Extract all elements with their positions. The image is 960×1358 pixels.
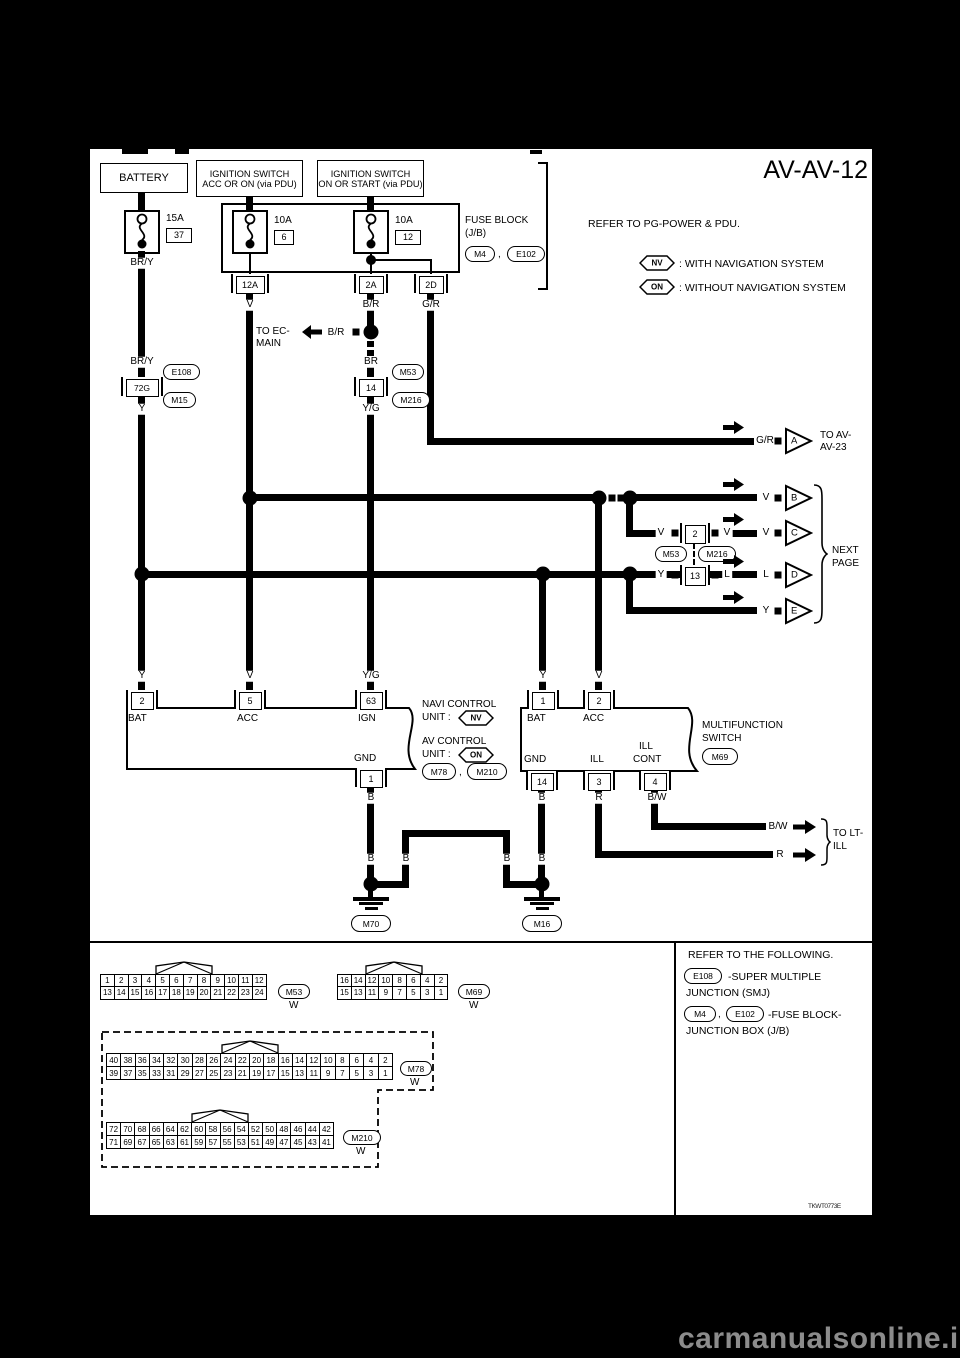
pin-cell: 49	[263, 1136, 277, 1149]
connector-color: W	[289, 1000, 298, 1012]
fuse1-number: 37	[166, 228, 192, 243]
on-tag-icon: ON	[639, 279, 675, 295]
pin-cell: 26	[207, 1054, 221, 1067]
pin-cell: 17	[156, 987, 170, 999]
pin-cell: 5	[156, 975, 170, 987]
wire-bw-run	[651, 823, 766, 830]
nv-tag: NV	[639, 259, 675, 268]
to-lt-ill-line2: ILL	[833, 841, 847, 853]
pin-cell: 31	[164, 1067, 178, 1080]
nv-tag-icon: NV	[458, 710, 494, 726]
legend-text-smj: -SUPER MULTIPLE	[728, 971, 821, 983]
pin-label-illcont1: ILL	[639, 741, 653, 753]
legend-text-smj2: JUNCTION (SMJ)	[686, 987, 770, 999]
section-bracket	[538, 162, 546, 164]
pin-label-acc: ACC	[237, 713, 258, 725]
fuse-block-label1: FUSE BLOCK	[465, 215, 528, 227]
pin-cell: 35	[136, 1067, 150, 1080]
pin-cell: 41	[320, 1136, 334, 1149]
multi-name2: SWITCH	[702, 733, 741, 745]
pin-cell: 23	[239, 987, 253, 999]
wire-stub	[712, 572, 719, 579]
section-bracket	[538, 288, 546, 290]
to-ec-main-line2: MAIN	[256, 338, 281, 350]
navi-unit-name2: AV CONTROL	[422, 736, 486, 748]
pin-cell: 60	[192, 1123, 206, 1136]
pin-cell: 9	[379, 987, 393, 999]
to-ec-main-line1: TO EC-	[256, 326, 290, 338]
link-letter: E	[791, 606, 797, 617]
connector-72g: 72G	[121, 377, 163, 396]
pin-cell: 21	[236, 1067, 250, 1080]
pin-label-gnd: GND	[524, 754, 546, 766]
pin-cell: 11	[307, 1067, 321, 1080]
pin-cell: 3	[129, 975, 143, 987]
pin-cell: 68	[135, 1123, 149, 1136]
pin-cell: 45	[291, 1136, 305, 1149]
fuse2-amp: 10A	[274, 215, 292, 227]
nv-legend-text: : WITH NAVIGATION SYSTEM	[679, 258, 824, 270]
wire-color: B	[502, 854, 513, 865]
terminal-2a: 2A	[354, 274, 388, 293]
legend-ref-m4: M4	[684, 1006, 716, 1022]
ground-icon	[524, 897, 560, 901]
left-arrow-icon	[301, 325, 322, 339]
on-tag: ON	[458, 751, 494, 760]
nv-tag-icon: NV	[639, 255, 675, 271]
pin-cell: 18	[264, 1054, 278, 1067]
pin-cell: 25	[207, 1067, 221, 1080]
pin-cell: 18	[170, 987, 184, 999]
pin-cell: 12	[253, 975, 267, 987]
multi-terminal-acc: 2	[583, 690, 615, 709]
ground-icon	[353, 897, 389, 901]
pin-cell: 55	[221, 1136, 235, 1149]
comma: ,	[459, 767, 462, 779]
ign1-line2: ACC OR ON (via PDU)	[202, 179, 296, 189]
ign1-line1: IGNITION SWITCH	[210, 169, 290, 179]
pin-label-ign: IGN	[358, 713, 376, 725]
junction-dot	[364, 325, 379, 340]
pin-grid-m210: 7270686664626058565452504846444271696765…	[106, 1122, 334, 1149]
diagram-code: TKWT0773E	[808, 1203, 841, 1210]
pin-cell: 63	[164, 1136, 178, 1149]
fuse3-number: 12	[395, 230, 421, 245]
pin-cell: 11	[239, 975, 253, 987]
terminal-number: 3	[588, 773, 611, 791]
pin-cell: 4	[142, 975, 156, 987]
pin-cell: 56	[221, 1123, 235, 1136]
pin-cell: 14	[115, 987, 129, 999]
connector-2: 2	[680, 523, 710, 543]
connector-14: 14	[354, 377, 388, 396]
on-tag-icon: ON	[458, 747, 494, 763]
wire-gr-run	[427, 438, 754, 445]
connector-ref-m53: M53	[655, 546, 687, 562]
pin-cell: 12	[307, 1054, 321, 1067]
pin-grid-m69: 16141210864215131197531	[337, 974, 448, 1000]
junction-dot	[243, 491, 258, 506]
right-arrow-icon	[723, 591, 745, 604]
right-arrow-icon	[723, 555, 745, 568]
connector-id-m69: M69	[458, 984, 490, 999]
next-page-brace	[812, 483, 828, 625]
legend-text-jb: -FUSE BLOCK-	[768, 1009, 842, 1021]
wire-color: V	[722, 528, 733, 539]
section-bracket	[546, 162, 548, 290]
fuse-10a-12-icon	[353, 210, 389, 254]
pin-cell: 61	[178, 1136, 192, 1149]
fuse-15a-icon	[124, 210, 160, 254]
connector-color: W	[410, 1077, 419, 1089]
pin-cell: 6	[350, 1054, 364, 1067]
pin-cell: 15	[338, 987, 352, 999]
pin-cell: 15	[279, 1067, 293, 1080]
pin-cell: 24	[253, 987, 267, 999]
pin-cell: 70	[121, 1123, 135, 1136]
pin-label-gnd: GND	[354, 753, 376, 765]
bus-upper	[246, 494, 598, 501]
wire-color: Y	[656, 570, 667, 581]
connector-ref-m216: M216	[392, 392, 430, 408]
divider	[90, 941, 872, 943]
fuse1-amp: 15A	[166, 213, 184, 225]
link-letter: B	[791, 493, 797, 504]
page-link-d: D	[785, 561, 813, 589]
pin-cell: 1	[101, 975, 115, 987]
wire-color: V	[761, 528, 772, 539]
lt-ill-brace	[819, 817, 831, 867]
fuse2-number: 6	[274, 230, 294, 245]
wire	[249, 252, 251, 276]
to-av23-line1: TO AV-	[820, 430, 851, 442]
wire-b-multi	[538, 790, 545, 888]
navi-unit-name1b: UNIT :	[422, 712, 451, 724]
connector-ref-m69: M69	[702, 748, 738, 765]
comma: ,	[718, 1009, 721, 1021]
pin-cell: 8	[198, 975, 212, 987]
navi-unit-name1: NAVI CONTROL	[422, 699, 496, 711]
wire	[539, 884, 544, 897]
pin-cell: 7	[393, 987, 407, 999]
pin-cell: 15	[129, 987, 143, 999]
pin-cell: 3	[421, 987, 435, 999]
ground-icon	[365, 907, 378, 910]
pin-cell: 43	[306, 1136, 320, 1149]
wire-color: Y	[137, 404, 148, 415]
navi-terminal-gnd: 1	[355, 768, 387, 787]
pin-cell: 36	[136, 1054, 150, 1067]
wire-v-right	[595, 494, 602, 691]
wire-color: V	[245, 671, 256, 682]
wire-stub	[672, 530, 679, 537]
wire-color: V	[594, 671, 605, 682]
pin-cell: 23	[221, 1067, 235, 1080]
pin-cell: 13	[101, 987, 115, 999]
page-edge-mark	[122, 149, 148, 154]
link-letter: A	[791, 436, 797, 447]
pin-cell: 42	[320, 1123, 334, 1136]
pin-cell: 11	[366, 987, 380, 999]
pin-cell: 40	[107, 1054, 121, 1067]
pin-cell: 38	[121, 1054, 135, 1067]
pin-cell: 46	[291, 1123, 305, 1136]
pin-cell: 34	[150, 1054, 164, 1067]
watermark: carmanualsonline.info	[678, 1322, 960, 1356]
pin-cell: 2	[115, 975, 129, 987]
junction-dot	[623, 491, 638, 506]
to-lt-ill-line1: TO LT-	[833, 828, 863, 840]
pin-label-ill: ILL	[590, 754, 604, 766]
wire	[368, 884, 373, 897]
wire-color: Y/G	[360, 404, 381, 415]
connector-id-m210: M210	[343, 1130, 381, 1145]
wire-color: Y/G	[360, 671, 381, 682]
pin-cell: 51	[249, 1136, 263, 1149]
terminal-number: 1	[360, 770, 383, 788]
right-arrow-icon	[723, 421, 745, 434]
pin-cell: 50	[263, 1123, 277, 1136]
multi-terminal-illcont: 4	[639, 771, 671, 790]
connector-ref-m78: M78	[422, 763, 456, 780]
terminal-number: 13	[685, 567, 706, 586]
wire-color: BR/Y	[128, 258, 155, 269]
pin-cell: 2	[435, 975, 449, 987]
navi-unit-name2b: UNIT :	[422, 749, 451, 761]
right-arrow-icon	[723, 478, 745, 491]
terminal-number: 1	[532, 692, 555, 710]
pin-cell: 62	[178, 1123, 192, 1136]
wire-color: B	[366, 854, 377, 865]
pin-label-bat: BAT	[128, 713, 147, 725]
connector-id-m53: M53	[278, 984, 310, 999]
wire-color: B/R	[361, 300, 382, 311]
wire-color: G/R	[420, 300, 442, 311]
junction-dot	[623, 567, 638, 582]
terminal-number: 2	[685, 525, 706, 544]
wire-stub	[672, 572, 679, 579]
wire-color: B	[366, 793, 377, 804]
wire-color: R	[593, 793, 604, 804]
right-arrow-icon	[793, 820, 817, 834]
pin-cell: 10	[225, 975, 239, 987]
page-edge-mark	[530, 150, 542, 154]
pin-cell: 37	[121, 1067, 135, 1080]
terminal-number: 12A	[236, 276, 265, 294]
terminal-number: 5	[239, 692, 262, 710]
terminal-2d: 2D	[414, 274, 448, 293]
page-link-b: B	[785, 484, 813, 512]
legend-text-jb2: JUNCTION BOX (J/B)	[686, 1025, 789, 1037]
terminal-number: 72G	[126, 379, 159, 397]
pin-cell: 4	[421, 975, 435, 987]
pin-cell: 5	[350, 1067, 364, 1080]
battery-box: BATTERY	[100, 163, 188, 193]
pin-cell: 5	[407, 987, 421, 999]
connector-key-icon	[365, 961, 423, 975]
connector-ref-m4: M4	[465, 246, 495, 262]
connector-key-icon	[155, 961, 213, 975]
right-arrow-icon	[793, 848, 817, 862]
wire-color: BR	[362, 357, 380, 368]
wire-bridge	[402, 830, 510, 837]
ign2-line1: IGNITION SWITCH	[331, 169, 411, 179]
connector-ref-m53: M53	[392, 364, 424, 380]
wire-color: L	[722, 570, 732, 581]
connector-id-m78: M78	[400, 1061, 432, 1076]
ground-icon	[536, 907, 549, 910]
pin-cell: 12	[366, 975, 380, 987]
connector-color: W	[469, 1000, 478, 1012]
on-tag: ON	[639, 283, 675, 292]
pin-cell: 19	[250, 1067, 264, 1080]
pin-label-bat: BAT	[527, 713, 546, 725]
wire-color: Y	[761, 606, 772, 617]
pin-cell: 20	[198, 987, 212, 999]
pin-cell: 66	[150, 1123, 164, 1136]
terminal-12a: 12A	[231, 274, 269, 293]
pin-cell: 2	[379, 1054, 393, 1067]
pin-cell: 16	[279, 1054, 293, 1067]
navi-terminal-ign: 63	[355, 690, 387, 709]
pin-cell: 72	[107, 1123, 121, 1136]
ign2-line2: ON OR START (via PDU)	[318, 179, 422, 189]
legend-title: REFER TO THE FOLLOWING.	[688, 949, 833, 961]
page-title: AV-AV-12	[763, 156, 868, 185]
pin-cell: 53	[235, 1136, 249, 1149]
pin-cell: 71	[107, 1136, 121, 1149]
bus-upper-right	[633, 494, 757, 501]
terminal-number: 14	[359, 379, 384, 397]
pin-cell: 47	[277, 1136, 291, 1149]
wire-color: Y	[137, 671, 148, 682]
nv-tag: NV	[458, 714, 494, 723]
pin-cell: 29	[178, 1067, 192, 1080]
terminal-number: 2	[131, 692, 154, 710]
pin-cell: 7	[336, 1067, 350, 1080]
wire-color: Y	[538, 671, 549, 682]
pin-cell: 27	[193, 1067, 207, 1080]
pin-cell: 16	[338, 975, 352, 987]
wire-color: B	[401, 854, 412, 865]
wire-r-run	[595, 851, 773, 858]
navi-terminal-bat: 2	[126, 690, 158, 709]
pin-cell: 9	[321, 1067, 335, 1080]
multi-terminal-gnd: 14	[526, 771, 558, 790]
pin-cell: 22	[236, 1054, 250, 1067]
pin-cell: 1	[435, 987, 449, 999]
pin-cell: 48	[277, 1123, 291, 1136]
terminal-number: 4	[644, 773, 667, 791]
pin-cell: 28	[193, 1054, 207, 1067]
connector-ref-e102: E102	[507, 246, 545, 262]
pin-cell: 8	[393, 975, 407, 987]
wire	[367, 197, 374, 211]
on-legend-text: : WITHOUT NAVIGATION SYSTEM	[679, 282, 846, 294]
page-link-a: A	[785, 427, 813, 455]
pin-cell: 7	[184, 975, 198, 987]
connector-key-icon	[191, 1109, 249, 1123]
page-link-c: C	[785, 519, 813, 547]
wire-color: V	[656, 528, 667, 539]
pin-cell: 17	[264, 1067, 278, 1080]
refer-note: REFER TO PG-POWER & PDU.	[588, 218, 740, 230]
pin-cell: 67	[135, 1136, 149, 1149]
legend-ref-e108: E108	[684, 968, 722, 984]
manual-page: AV-AV-12 BATTERY IGNITION SWITCH ACC OR …	[0, 0, 960, 1358]
pin-cell: 14	[352, 975, 366, 987]
terminal-number: 2A	[359, 276, 384, 294]
pin-grid-m53: 123456789101112131415161718192021222324	[100, 974, 267, 1000]
wire-color: BR/Y	[128, 357, 155, 368]
wire-color: L	[761, 570, 771, 581]
junction-dot	[592, 491, 607, 506]
connector-color: W	[356, 1146, 365, 1158]
wire-color: B/R	[326, 328, 347, 339]
wire-dash	[367, 341, 374, 347]
ignition-switch-acc-box: IGNITION SWITCH ACC OR ON (via PDU)	[196, 160, 303, 197]
pin-cell: 20	[250, 1054, 264, 1067]
wire	[246, 197, 253, 211]
terminal-number: 2D	[419, 276, 444, 294]
pin-cell: 58	[206, 1123, 220, 1136]
fuse3-amp: 10A	[395, 215, 413, 227]
wire-stub	[775, 495, 782, 502]
connector-divider	[693, 543, 697, 565]
terminal-number: 2	[588, 692, 611, 710]
wire	[371, 259, 431, 261]
connector-13: 13	[680, 565, 710, 585]
pin-cell: 24	[221, 1054, 235, 1067]
multi-name1: MULTIFUNCTION	[702, 720, 783, 732]
wire-dash	[609, 495, 616, 502]
pin-cell: 52	[249, 1123, 263, 1136]
next-page-line2: PAGE	[832, 558, 859, 570]
pin-cell: 4	[364, 1054, 378, 1067]
wire-battery	[138, 251, 145, 691]
pin-cell: 22	[225, 987, 239, 999]
pin-label-illcont2: CONT	[633, 754, 661, 766]
connector-ref-m15: M15	[163, 392, 196, 408]
pin-cell: 9	[211, 975, 225, 987]
wire-stub	[775, 530, 782, 537]
ground-icon	[530, 902, 554, 905]
pin-cell: 64	[164, 1123, 178, 1136]
page-edge-mark	[175, 149, 189, 154]
ground-ref-m16: M16	[522, 915, 562, 932]
pin-cell: 69	[121, 1136, 135, 1149]
pin-cell: 8	[336, 1054, 350, 1067]
wire-stub	[353, 329, 360, 336]
pin-grid-m78: 4038363432302826242220181614121086423937…	[106, 1053, 393, 1080]
ground-icon	[359, 902, 383, 905]
ground-ref-m70: M70	[351, 915, 391, 932]
pin-cell: 10	[379, 975, 393, 987]
wire-gr	[427, 293, 434, 445]
pin-cell: 13	[352, 987, 366, 999]
pin-cell: 1	[379, 1067, 393, 1080]
multi-terminal-ill: 3	[583, 771, 615, 790]
pin-label-acc: ACC	[583, 713, 604, 725]
page-link-e: E	[785, 597, 813, 625]
pin-cell: 57	[206, 1136, 220, 1149]
wire-stub	[775, 608, 782, 615]
connector-key-icon	[221, 1040, 279, 1054]
wire-color: V	[245, 300, 256, 311]
divider	[674, 942, 676, 1215]
multifunction-switch-box	[520, 707, 706, 773]
junction-dot	[366, 255, 376, 265]
